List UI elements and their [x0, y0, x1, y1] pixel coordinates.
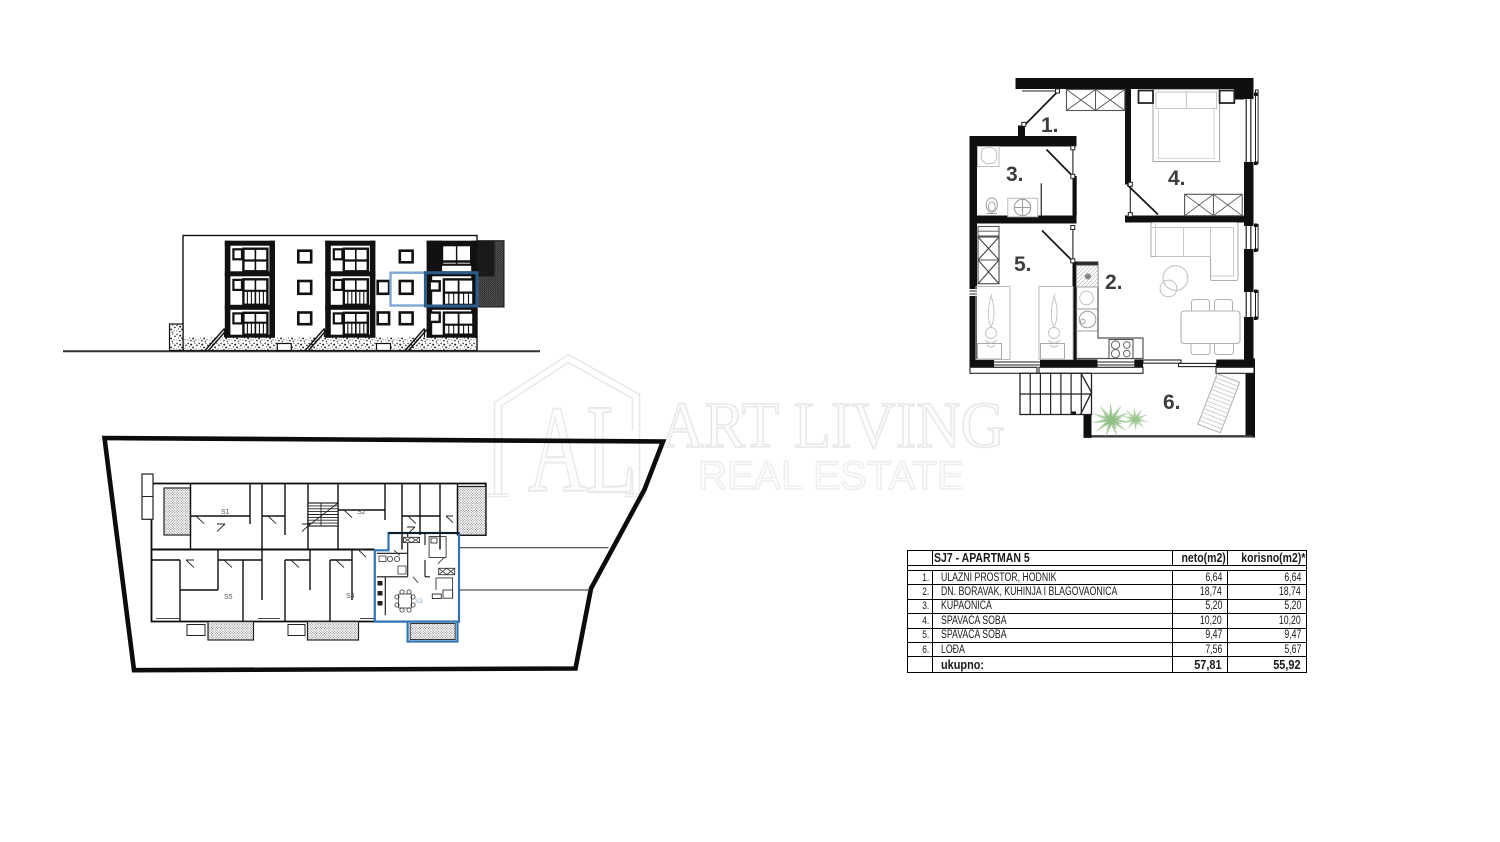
svg-text:REAL ESTATE: REAL ESTATE: [698, 454, 964, 498]
svg-text:ART LIVING: ART LIVING: [660, 389, 1005, 462]
svg-text:5.: 5.: [1014, 253, 1032, 276]
svg-text:3.: 3.: [1006, 163, 1024, 186]
svg-text:S5: S5: [224, 594, 233, 601]
svg-text:S1: S1: [221, 509, 230, 516]
svg-text:2.: 2.: [1105, 271, 1123, 294]
svg-text:A: A: [528, 380, 587, 518]
svg-text:1.: 1.: [1041, 114, 1059, 137]
svg-text:6.: 6.: [1163, 391, 1181, 414]
svg-text:S2: S2: [357, 509, 366, 516]
svg-text:4.: 4.: [1168, 167, 1186, 190]
svg-text:S4: S4: [346, 593, 355, 600]
svg-text:L: L: [586, 379, 636, 521]
svg-text:S3: S3: [415, 599, 423, 605]
